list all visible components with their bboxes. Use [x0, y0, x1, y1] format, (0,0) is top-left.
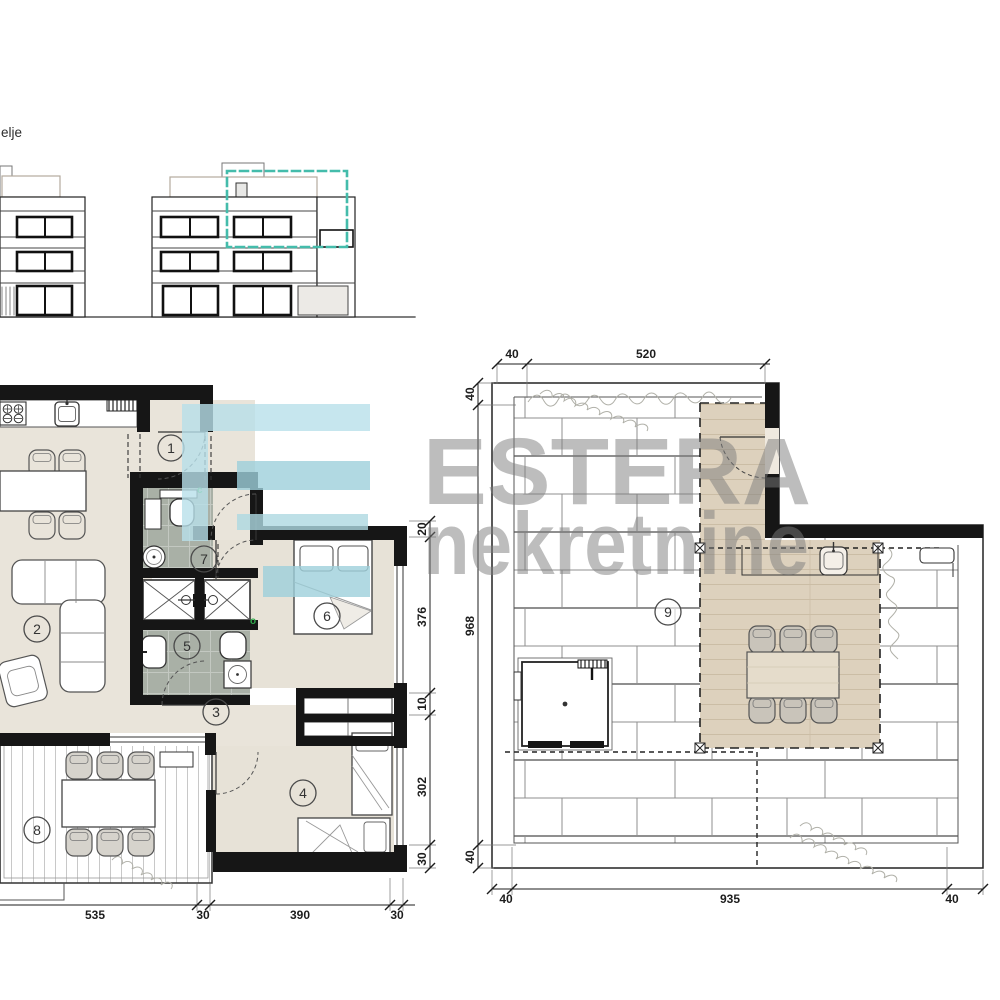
dim-302: 302 [415, 777, 429, 797]
dim-40-bottom-left: 40 [499, 892, 513, 906]
watermark: ESTERA nekretnine [182, 404, 811, 597]
dim-968: 968 [463, 616, 477, 636]
dim-40-left-top: 40 [463, 387, 477, 401]
dim-30-right: 30 [415, 852, 429, 866]
building-elevations [0, 163, 415, 317]
room-label-2: 2 [33, 621, 41, 637]
dim-520: 520 [636, 347, 656, 361]
watermark-subtitle: nekretnine [423, 494, 809, 593]
page-title-fragment: elje [1, 125, 22, 140]
dim-40-left-bottom: 40 [463, 850, 477, 864]
elevation-right-building [152, 163, 355, 317]
kitchen-appliance [107, 400, 137, 411]
terrace-table [62, 780, 155, 827]
dim-40-top: 40 [505, 347, 519, 361]
room-label-3: 3 [212, 704, 220, 720]
dim-10: 10 [415, 697, 429, 711]
room-label-5: 5 [183, 638, 191, 654]
floorplan-drawing: elje [0, 0, 1000, 1000]
dim-30-a: 30 [196, 908, 210, 922]
skylight-box [514, 658, 612, 750]
room-label-8: 8 [33, 822, 41, 838]
dim-30-b: 30 [390, 908, 404, 922]
floorplan-page: elje [0, 0, 1000, 1000]
room-label-9: 9 [664, 604, 672, 620]
marker-o: o [250, 616, 256, 627]
terrace-box [160, 752, 193, 767]
dim-935: 935 [720, 892, 740, 906]
elevation-left-building [0, 166, 85, 317]
dim-376: 376 [415, 607, 429, 627]
dim-390: 390 [290, 908, 310, 922]
room-label-7: 7 [200, 551, 208, 567]
kitchen [0, 399, 137, 428]
dim-535: 535 [85, 908, 105, 922]
room-label-1: 1 [167, 440, 175, 456]
toilet [220, 632, 246, 659]
outdoor-dining-set [747, 626, 839, 723]
dim-40-bottom-right: 40 [945, 892, 959, 906]
apartment-plan: 1 2 3 4 5 6 7 8 c o 20 376 1 [0, 0, 436, 922]
room-label-6: 6 [323, 608, 331, 624]
single-bed-horizontal [298, 818, 390, 856]
outdoor-table [747, 652, 839, 698]
room-label-4: 4 [299, 785, 307, 801]
